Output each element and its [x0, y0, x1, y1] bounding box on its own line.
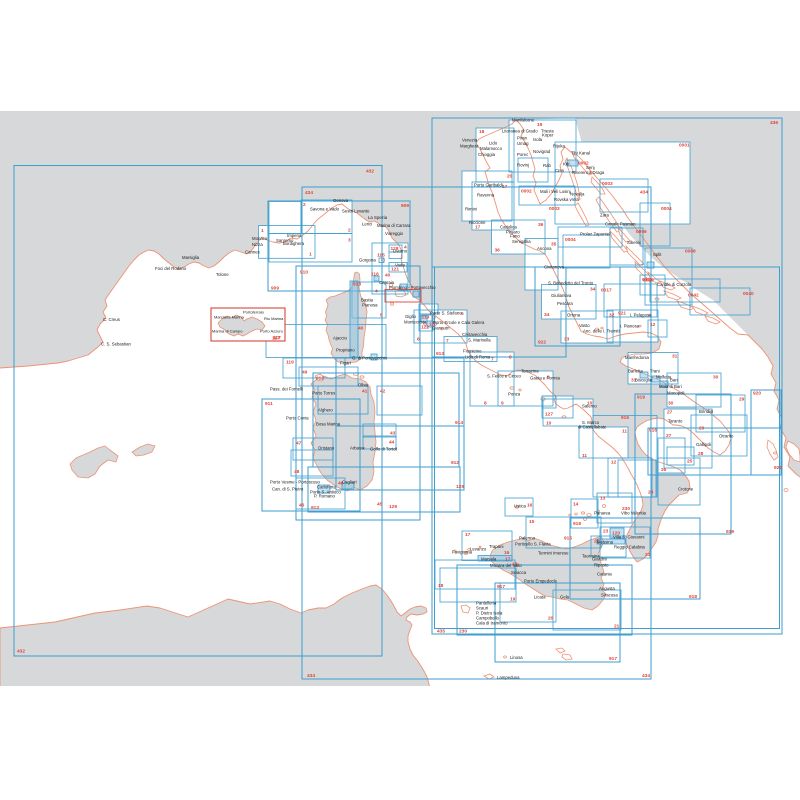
- svg-text:Ajaccio: Ajaccio: [333, 336, 347, 341]
- svg-text:Piran: Piran: [517, 136, 528, 141]
- svg-text:25: 25: [687, 459, 693, 465]
- svg-text:43: 43: [390, 431, 396, 437]
- svg-text:Termini Imerese: Termini Imerese: [538, 551, 569, 556]
- svg-text:Porto Azzuro: Porto Azzuro: [260, 329, 284, 334]
- svg-text:Chioggia: Chioggia: [478, 152, 496, 157]
- svg-text:Riccione: Riccione: [469, 220, 486, 225]
- svg-text:7: 7: [446, 338, 449, 344]
- svg-text:Giglio: Giglio: [405, 314, 417, 319]
- svg-text:17: 17: [502, 184, 508, 190]
- svg-text:34: 34: [544, 312, 550, 318]
- svg-text:19: 19: [510, 597, 516, 603]
- svg-text:Venezia: Venezia: [462, 138, 478, 143]
- svg-text:28: 28: [698, 451, 704, 457]
- svg-text:18: 18: [479, 129, 485, 135]
- svg-text:14: 14: [573, 502, 579, 508]
- svg-text:0003: 0003: [549, 206, 560, 212]
- svg-text:0040: 0040: [743, 291, 754, 297]
- svg-text:432: 432: [366, 169, 374, 175]
- svg-text:0004: 0004: [565, 237, 576, 243]
- svg-text:Ortona: Ortona: [567, 313, 581, 318]
- svg-text:Prolaz Zapuntel: Prolaz Zapuntel: [580, 232, 610, 237]
- svg-text:117: 117: [273, 335, 281, 341]
- svg-text:36: 36: [538, 222, 544, 228]
- svg-text:909: 909: [271, 286, 279, 292]
- svg-text:Linosa: Linosa: [510, 655, 523, 660]
- svg-text:Monfalcone: Monfalcone: [512, 118, 535, 123]
- svg-text:917: 917: [609, 656, 617, 662]
- svg-text:47: 47: [296, 441, 302, 447]
- svg-text:Salerno: Salerno: [582, 404, 597, 409]
- svg-text:Cattolica: Cattolica: [500, 225, 517, 230]
- svg-text:Terracina: Terracina: [521, 369, 539, 374]
- svg-text:Taormina: Taormina: [582, 554, 600, 559]
- svg-text:12: 12: [650, 322, 656, 328]
- svg-text:922: 922: [538, 340, 546, 346]
- svg-text:di Castellabate: di Castellabate: [578, 425, 607, 430]
- svg-text:Cannes: Cannes: [245, 250, 260, 255]
- svg-text:Bastia: Bastia: [361, 298, 374, 303]
- svg-text:Porto Ercole e Cala Galera: Porto Ercole e Cala Galera: [433, 320, 485, 325]
- svg-text:29: 29: [739, 397, 745, 403]
- svg-text:913: 913: [353, 282, 361, 288]
- svg-text:0042: 0042: [688, 293, 699, 299]
- svg-text:Pescara: Pescara: [557, 301, 573, 306]
- svg-text:Rimini: Rimini: [465, 207, 477, 212]
- svg-text:436: 436: [770, 120, 778, 126]
- svg-text:119: 119: [286, 360, 294, 366]
- svg-text:16: 16: [504, 550, 510, 556]
- svg-text:12: 12: [611, 460, 617, 466]
- svg-text:26: 26: [661, 467, 667, 473]
- svg-text:Civitanova: Civitanova: [544, 265, 565, 270]
- svg-text:8: 8: [509, 355, 512, 361]
- svg-text:910: 910: [300, 270, 308, 276]
- svg-text:Otranto: Otranto: [719, 434, 734, 439]
- svg-text:15: 15: [529, 519, 535, 525]
- svg-text:45: 45: [377, 502, 383, 508]
- svg-text:Monaco: Monaco: [252, 236, 268, 241]
- svg-text:Rab: Rab: [543, 163, 551, 168]
- svg-text:Krk: Krk: [563, 162, 570, 167]
- svg-text:Lampedusa: Lampedusa: [497, 675, 520, 680]
- svg-text:Trapani: Trapani: [489, 544, 503, 549]
- svg-text:918: 918: [689, 594, 697, 600]
- svg-text:C. S. Sebastian: C. S. Sebastian: [101, 342, 131, 347]
- svg-text:Senigallia: Senigallia: [512, 239, 531, 244]
- svg-text:20: 20: [548, 616, 554, 622]
- svg-text:Porto Conte: Porto Conte: [286, 416, 310, 421]
- svg-text:Split: Split: [653, 252, 662, 257]
- svg-text:Viareggio: Viareggio: [385, 231, 404, 236]
- svg-text:911: 911: [265, 401, 273, 407]
- svg-text:Montecristo: Montecristo: [404, 320, 427, 325]
- svg-text:33: 33: [564, 337, 570, 343]
- svg-text:S. Felice e Circeo: S. Felice e Circeo: [487, 374, 522, 379]
- svg-text:24: 24: [648, 490, 654, 496]
- svg-text:21: 21: [614, 624, 620, 630]
- svg-text:434: 434: [305, 190, 313, 196]
- svg-text:Ravenna: Ravenna: [477, 193, 495, 198]
- svg-text:434: 434: [307, 673, 315, 679]
- svg-text:Bisceglie: Bisceglie: [635, 378, 653, 383]
- svg-text:432: 432: [17, 649, 25, 655]
- svg-text:36: 36: [495, 248, 501, 254]
- svg-text:Tihi Kanal: Tihi Kanal: [571, 151, 590, 156]
- svg-text:Augusta: Augusta: [599, 586, 615, 591]
- svg-text:Canale Pasman: Canale Pasman: [605, 222, 636, 227]
- svg-text:9: 9: [501, 401, 504, 407]
- svg-text:Imperia: Imperia: [287, 233, 302, 238]
- svg-text:Cagliari: Cagliari: [342, 480, 357, 485]
- svg-text:27: 27: [666, 433, 672, 439]
- svg-text:1: 1: [261, 228, 264, 234]
- svg-text:Porto Vesme - Portoscuso: Porto Vesme - Portoscuso: [270, 480, 321, 485]
- svg-text:Zara: Zara: [600, 213, 609, 218]
- svg-text:116: 116: [371, 272, 379, 278]
- svg-text:912: 912: [316, 376, 324, 382]
- svg-text:Manfredonia: Manfredonia: [625, 355, 649, 360]
- svg-text:Panarea: Panarea: [594, 511, 611, 516]
- svg-text:Mola di Bari: Mola di Bari: [659, 384, 682, 389]
- svg-text:Porto Empedocle: Porto Empedocle: [524, 579, 558, 584]
- svg-text:19: 19: [537, 122, 543, 128]
- svg-text:Savona e Vado: Savona e Vado: [310, 207, 340, 212]
- svg-text:0002: 0002: [521, 189, 532, 195]
- svg-text:Levanzo: Levanzo: [470, 547, 487, 552]
- svg-text:Bosa Marina: Bosa Marina: [316, 422, 341, 427]
- svg-text:Trani: Trani: [650, 369, 660, 374]
- svg-text:I. Pelagosa: I. Pelagosa: [630, 313, 652, 318]
- svg-text:921: 921: [618, 311, 626, 317]
- svg-text:Alghero: Alghero: [318, 408, 333, 413]
- svg-text:Porec: Porec: [517, 152, 529, 157]
- svg-text:Tolone: Tolone: [216, 272, 229, 277]
- svg-text:0004: 0004: [661, 206, 672, 212]
- svg-text:Messina: Messina: [597, 540, 614, 545]
- svg-text:32: 32: [609, 313, 615, 319]
- svg-text:Capraia: Capraia: [379, 280, 395, 285]
- svg-text:Vasto: Vasto: [579, 323, 590, 328]
- svg-text:35: 35: [551, 242, 557, 248]
- svg-text:434: 434: [642, 673, 650, 679]
- svg-text:915: 915: [621, 415, 629, 421]
- svg-text:Olbia: Olbia: [358, 383, 369, 388]
- svg-text:0003: 0003: [602, 181, 613, 187]
- svg-text:434: 434: [640, 190, 648, 196]
- svg-text:31: 31: [672, 354, 678, 360]
- svg-text:S. Marinella: S. Marinella: [468, 338, 491, 343]
- svg-text:914: 914: [455, 420, 463, 426]
- svg-text:16: 16: [527, 503, 533, 509]
- svg-text:46: 46: [299, 503, 305, 509]
- svg-text:Porto S. Stefano: Porto S. Stefano: [430, 311, 462, 316]
- svg-text:Rio Marina: Rio Marina: [264, 316, 284, 321]
- svg-text:Civitavecchia: Civitavecchia: [462, 332, 488, 337]
- svg-text:6: 6: [417, 337, 420, 343]
- svg-text:7: 7: [491, 357, 494, 363]
- svg-text:0017: 0017: [601, 288, 612, 294]
- svg-text:Vibo Valentia: Vibo Valentia: [621, 511, 647, 516]
- svg-text:Marina di Carrara: Marina di Carrara: [377, 223, 411, 228]
- svg-text:Licata: Licata: [534, 595, 546, 600]
- svg-text:Rovska vrela: Rovska vrela: [554, 197, 579, 202]
- svg-text:Giulianova: Giulianova: [551, 293, 572, 298]
- svg-text:909: 909: [401, 203, 409, 209]
- svg-text:Golfo di Tortoli: Golfo di Tortoli: [370, 447, 397, 452]
- svg-text:Ustica: Ustica: [514, 504, 527, 509]
- svg-text:Catania: Catania: [597, 572, 612, 577]
- svg-text:0011: 0011: [642, 277, 653, 283]
- svg-text:115: 115: [377, 253, 385, 259]
- svg-text:Ancona: Ancona: [537, 246, 552, 251]
- svg-text:2: 2: [303, 202, 306, 208]
- svg-text:0006: 0006: [636, 229, 647, 235]
- svg-text:0001: 0001: [679, 143, 690, 149]
- svg-text:Palermo: Palermo: [519, 536, 536, 541]
- svg-text:Marsiglia: Marsiglia: [182, 255, 200, 260]
- svg-text:Lido: Lido: [489, 141, 498, 146]
- svg-text:C. Creus: C. Creus: [103, 317, 120, 322]
- svg-text:Mali i Veli Losinj: Mali i Veli Losinj: [540, 189, 571, 194]
- svg-text:Propriano: Propriano: [336, 348, 355, 353]
- svg-text:29: 29: [699, 426, 705, 432]
- svg-text:30: 30: [713, 375, 719, 381]
- svg-text:918: 918: [573, 521, 581, 527]
- svg-text:Cres: Cres: [555, 168, 564, 173]
- svg-text:Rovinj: Rovinj: [517, 163, 529, 168]
- svg-text:919: 919: [637, 395, 645, 401]
- svg-text:915: 915: [564, 536, 572, 542]
- svg-text:Pesaro: Pesaro: [506, 230, 520, 235]
- svg-text:Piombino - Portovecchio: Piombino - Portovecchio: [389, 285, 436, 290]
- svg-text:Marina di Campo: Marina di Campo: [212, 329, 243, 334]
- svg-text:Sciacca: Sciacca: [511, 570, 527, 575]
- svg-text:Gorgona: Gorgona: [359, 258, 376, 263]
- svg-text:913: 913: [311, 505, 319, 511]
- svg-text:17: 17: [475, 225, 481, 231]
- svg-text:27: 27: [667, 410, 673, 416]
- svg-text:Litoranea di Grado: Litoranea di Grado: [502, 129, 538, 134]
- svg-text:Villa S. Giovanni: Villa S. Giovanni: [613, 535, 644, 540]
- svg-text:P. Romano: P. Romano: [314, 494, 336, 499]
- svg-text:Vada: Vada: [395, 263, 405, 268]
- svg-text:5: 5: [380, 313, 383, 319]
- svg-text:18: 18: [438, 583, 444, 589]
- svg-text:Bordighera: Bordighera: [283, 241, 305, 246]
- svg-text:Porto Torres: Porto Torres: [312, 391, 335, 396]
- svg-text:4: 4: [375, 289, 378, 295]
- svg-text:230: 230: [459, 629, 467, 635]
- svg-text:Foci del Rodano: Foci del Rodano: [155, 266, 187, 271]
- svg-text:Novalja: Novalja: [570, 192, 585, 197]
- svg-text:Barletta: Barletta: [628, 369, 643, 374]
- svg-text:Riverenca Draga: Riverenca Draga: [572, 170, 605, 175]
- svg-text:44: 44: [389, 440, 395, 446]
- svg-text:Crotone: Crotone: [678, 487, 694, 492]
- svg-text:Anc. delle I. Tremiti: Anc. delle I. Tremiti: [583, 329, 620, 334]
- svg-text:Gela: Gela: [560, 595, 570, 600]
- svg-text:Livorno: Livorno: [393, 249, 408, 254]
- svg-text:Ponza: Ponza: [508, 392, 521, 397]
- svg-text:129: 129: [456, 484, 464, 490]
- svg-text:Isola: Isola: [533, 137, 543, 142]
- svg-text:919: 919: [726, 529, 734, 535]
- svg-text:Portoferraio: Portoferraio: [243, 310, 265, 315]
- svg-text:11: 11: [622, 429, 627, 435]
- svg-text:Gaeta e Formia: Gaeta e Formia: [530, 376, 560, 381]
- svg-text:916: 916: [649, 428, 657, 434]
- svg-text:912: 912: [451, 460, 459, 466]
- svg-text:G. di Portovecchio: G. di Portovecchio: [352, 356, 388, 361]
- svg-text:Rijeka: Rijeka: [553, 144, 566, 149]
- svg-text:Taranto: Taranto: [668, 419, 683, 424]
- svg-text:Fiumicino: Fiumicino: [463, 349, 482, 354]
- svg-text:Lido di Roma: Lido di Roma: [465, 355, 491, 360]
- svg-text:127: 127: [545, 412, 553, 418]
- svg-text:Lerici: Lerici: [362, 222, 372, 227]
- svg-text:1: 1: [309, 252, 312, 258]
- svg-text:Mazara del Vallo: Mazara del Vallo: [490, 563, 522, 568]
- svg-text:913: 913: [436, 351, 444, 357]
- svg-text:Reggio Calabria: Reggio Calabria: [614, 545, 645, 550]
- svg-text:13: 13: [600, 496, 606, 502]
- svg-text:Umag: Umag: [517, 141, 529, 146]
- svg-text:8: 8: [484, 401, 487, 407]
- svg-text:23: 23: [603, 529, 609, 535]
- svg-text:Nizza: Nizza: [252, 242, 263, 247]
- svg-text:11: 11: [582, 453, 587, 459]
- svg-text:Figari: Figari: [340, 361, 351, 366]
- svg-text:920: 920: [753, 391, 761, 397]
- svg-text:Koper: Koper: [542, 133, 554, 138]
- svg-text:48: 48: [294, 469, 300, 475]
- svg-text:Can. di S. Pietro: Can. di S. Pietro: [272, 487, 304, 492]
- svg-text:42: 42: [380, 389, 386, 395]
- svg-text:Gallipoli: Gallipoli: [696, 442, 711, 447]
- svg-text:Canale di Curzola: Canale di Curzola: [657, 282, 692, 287]
- svg-text:0008: 0008: [685, 249, 696, 255]
- svg-text:Riposto: Riposto: [594, 563, 609, 568]
- svg-text:2: 2: [348, 228, 351, 234]
- svg-text:S. Benedetto del Tronto: S. Benedetto del Tronto: [548, 281, 594, 286]
- svg-text:920: 920: [774, 465, 782, 471]
- svg-text:Malamocco: Malamocco: [480, 146, 503, 151]
- svg-text:40: 40: [358, 326, 364, 332]
- svg-text:Genova: Genova: [333, 198, 349, 203]
- svg-text:I. Pianosa: I. Pianosa: [620, 324, 640, 329]
- svg-text:La Spezia: La Spezia: [368, 215, 388, 220]
- svg-text:Cala di tramonto: Cala di tramonto: [476, 621, 508, 626]
- svg-text:Novigrad: Novigrad: [533, 149, 551, 154]
- svg-text:Giannutri: Giannutri: [432, 326, 449, 331]
- svg-text:Porticello S. Flavia: Porticello S. Flavia: [515, 542, 551, 547]
- svg-text:Arbatax: Arbatax: [350, 446, 366, 451]
- svg-text:Pass. dei Fornelli: Pass. dei Fornelli: [270, 387, 303, 392]
- svg-text:49: 49: [302, 370, 308, 376]
- svg-text:129: 129: [389, 504, 397, 510]
- svg-text:Porto Garibaldi: Porto Garibaldi: [474, 183, 503, 188]
- svg-text:41: 41: [362, 389, 368, 395]
- svg-text:Marghera: Marghera: [460, 144, 479, 149]
- svg-text:Marciana Marina: Marciana Marina: [214, 315, 245, 320]
- svg-text:17: 17: [505, 557, 511, 563]
- svg-text:10: 10: [546, 421, 552, 427]
- svg-text:917: 917: [497, 584, 505, 590]
- svg-text:20: 20: [507, 174, 513, 180]
- svg-text:Brindisi: Brindisi: [699, 409, 713, 414]
- svg-text:435: 435: [437, 629, 445, 635]
- svg-text:Sestri Levante: Sestri Levante: [342, 209, 370, 214]
- svg-text:Siracusa: Siracusa: [601, 593, 618, 598]
- svg-text:17: 17: [465, 532, 471, 538]
- svg-text:Pianosa: Pianosa: [362, 303, 378, 308]
- svg-text:Marsala: Marsala: [481, 557, 497, 562]
- svg-text:34: 34: [590, 287, 596, 293]
- svg-text:Monopoli: Monopoli: [667, 391, 684, 396]
- svg-text:Sibenic: Sibenic: [627, 240, 642, 245]
- svg-text:23: 23: [645, 552, 651, 558]
- svg-text:3: 3: [348, 238, 351, 244]
- svg-text:Oristano: Oristano: [318, 446, 335, 451]
- svg-text:Bari: Bari: [670, 378, 678, 383]
- svg-text:30: 30: [668, 401, 674, 407]
- svg-text:40: 40: [385, 273, 391, 279]
